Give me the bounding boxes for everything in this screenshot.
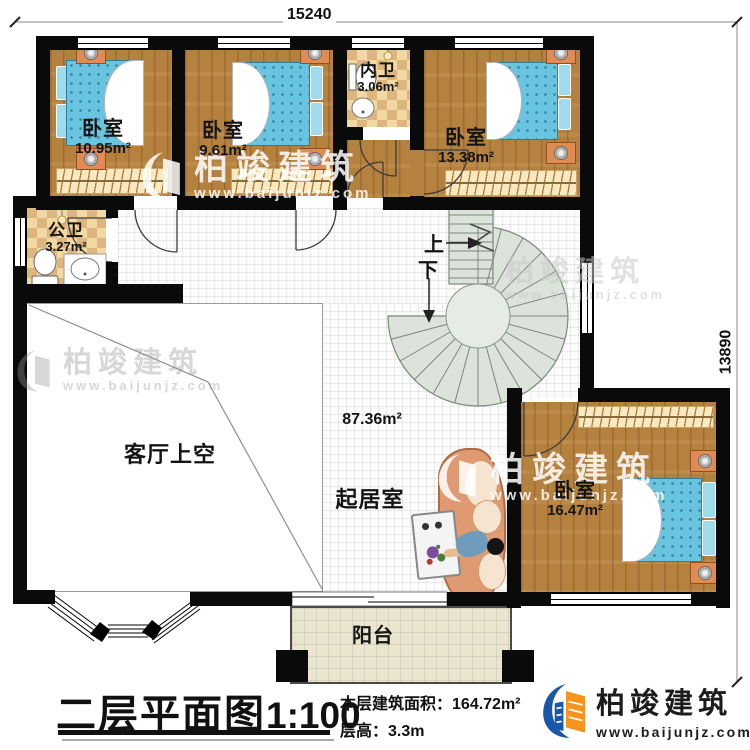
title-underline — [58, 730, 330, 735]
window — [218, 36, 290, 50]
floor-plan: 柏竣建筑 www.baijunjz.com 柏竣建筑 www.baijunjz.… — [0, 0, 750, 750]
wall-left-upper — [36, 36, 50, 208]
brand-url: www.baijunjz.com — [596, 724, 750, 740]
coffee-table — [411, 510, 462, 580]
window — [580, 263, 594, 333]
window — [13, 218, 27, 266]
window — [352, 36, 404, 50]
wall-bedroom4-left — [507, 388, 521, 608]
brand-logo-icon — [540, 682, 592, 740]
room-label-public-bath: 公卫 3.27m² — [45, 222, 86, 254]
room-label-inner-bath: 内卫 3.06m² — [357, 62, 398, 94]
window — [78, 36, 148, 50]
pillow — [702, 520, 716, 556]
sliding-door — [292, 592, 447, 606]
pillow — [558, 64, 571, 96]
wall-bedroom2-bottom — [177, 196, 296, 210]
bed — [484, 58, 572, 142]
wall-bedroom4-right — [716, 388, 730, 608]
wall-bedroom4-top — [578, 388, 730, 402]
room-label-bedroom1: 卧室 10.95m² — [75, 119, 131, 157]
bay-window — [48, 595, 200, 643]
brand-logo: 柏竣建筑 www.baijunjz.com — [540, 680, 750, 740]
wardrobe — [231, 168, 333, 194]
wardrobe — [445, 170, 577, 196]
wall-bottom — [190, 592, 292, 606]
pillow — [558, 98, 571, 130]
wall-void-top — [13, 284, 183, 303]
wall-publicbath-right — [106, 196, 118, 218]
bed — [618, 474, 714, 566]
nightstand — [546, 142, 576, 164]
wall-vestibule-bottom — [383, 197, 410, 210]
room-label-bedroom4: 卧室 16.47m² — [547, 481, 603, 519]
window — [551, 592, 691, 606]
wall-right-upper — [580, 36, 594, 397]
room-label-bedroom2: 卧室 9.61m² — [199, 121, 247, 159]
pillow — [310, 66, 323, 100]
room-label-void: 客厅上空 — [124, 443, 216, 467]
stair-down-label: 下 — [418, 254, 438, 283]
pillow — [310, 102, 323, 136]
wardrobe — [56, 168, 168, 194]
living-floor-upper — [118, 208, 580, 303]
wall-bedroom3-bottom — [410, 197, 580, 210]
wall-bedroom1-2 — [172, 50, 185, 196]
wardrobe — [578, 406, 714, 428]
sofa-cushion — [478, 552, 506, 590]
balcony-pillar — [502, 650, 534, 682]
wall-bedroom2-bath — [333, 36, 347, 210]
balcony-pillar — [276, 650, 308, 682]
wall-innerbath-bottom — [333, 127, 363, 140]
brand-name: 柏竣建筑 — [596, 680, 750, 722]
living-floor-mid — [322, 303, 580, 398]
stair-up-label: 上 — [424, 228, 444, 257]
wall-bay-left — [13, 590, 55, 604]
living-area-value: 87.36m² — [342, 411, 402, 428]
floor-area-info: 本层建筑面积：164.72m² — [340, 690, 521, 714]
wall-bedroom1-bottom — [36, 196, 134, 210]
hall-vestibule-floor — [347, 140, 410, 198]
sofa-cushion — [472, 500, 502, 534]
title-underline-shadow — [62, 739, 334, 741]
wall-bottom — [691, 592, 730, 606]
door-opening — [410, 150, 424, 196]
nightstand — [300, 148, 330, 170]
floor-height-info: 层高：3.3m — [340, 717, 424, 741]
room-label-bedroom3: 卧室 13.38m² — [438, 128, 494, 166]
flower-icon — [426, 546, 439, 559]
balcony-floor — [290, 606, 512, 684]
dimension-top-value: 15240 — [283, 6, 336, 24]
wall-bottom — [447, 592, 551, 606]
window — [455, 36, 543, 50]
room-label-balcony: 阳台 — [352, 626, 394, 648]
cup-icon — [422, 523, 430, 531]
cup-icon — [435, 521, 443, 529]
room-label-living: 起居室 — [335, 488, 404, 512]
pillow — [702, 482, 716, 518]
dimension-right-value: 13890 — [717, 326, 735, 379]
person-head — [487, 538, 504, 555]
